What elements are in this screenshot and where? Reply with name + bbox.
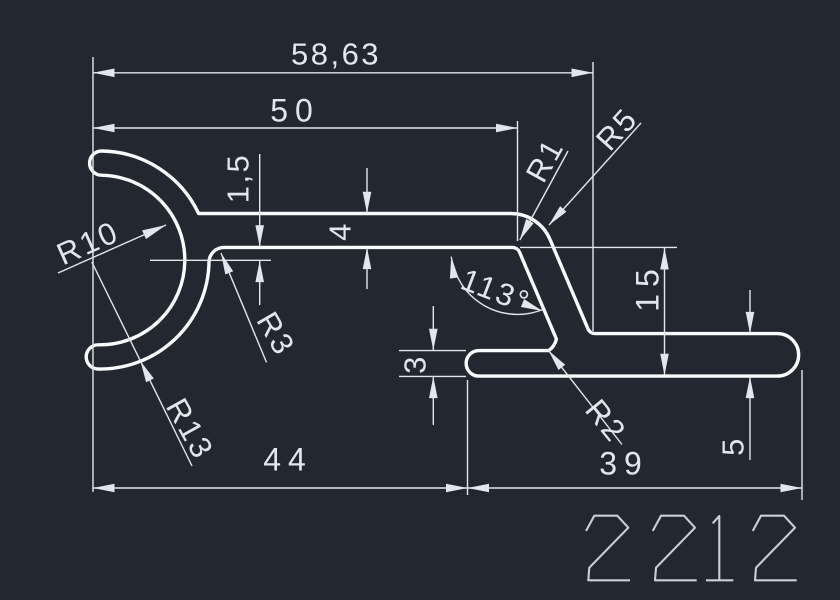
svg-text:15: 15 bbox=[630, 262, 666, 312]
svg-text:5: 5 bbox=[716, 436, 751, 456]
svg-text:58,63: 58,63 bbox=[291, 37, 381, 72]
svg-text:3: 3 bbox=[398, 354, 433, 374]
svg-text:44: 44 bbox=[263, 442, 313, 478]
svg-text:39: 39 bbox=[599, 446, 649, 482]
svg-text:4: 4 bbox=[323, 221, 358, 241]
svg-text:1,5: 1,5 bbox=[221, 153, 256, 204]
svg-text:50: 50 bbox=[270, 93, 320, 129]
